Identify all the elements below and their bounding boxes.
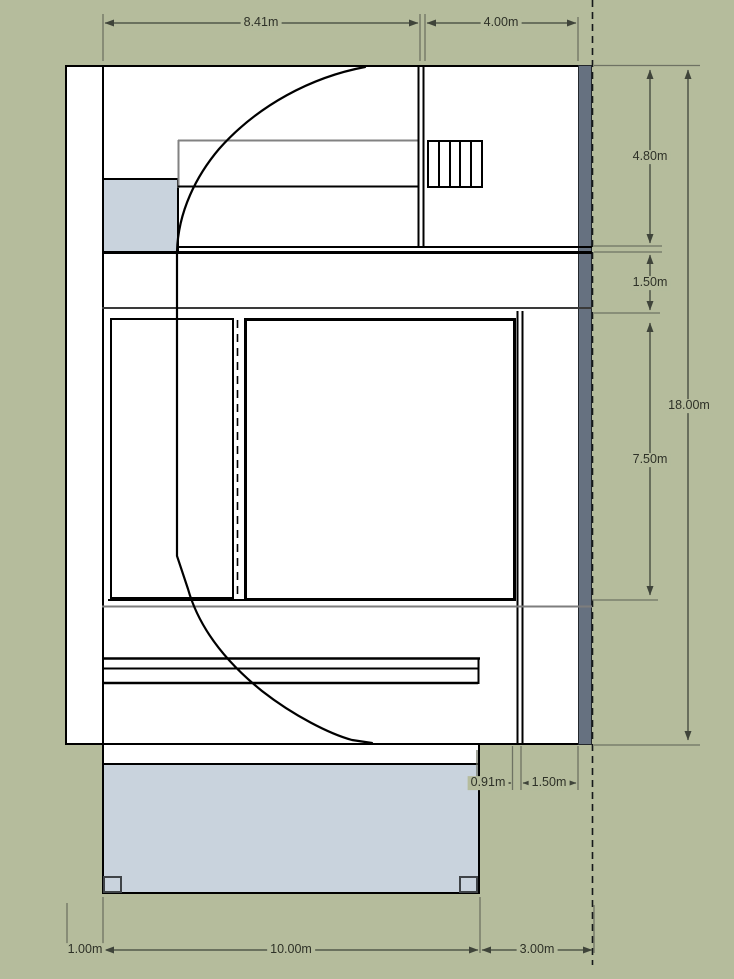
extension-lines xyxy=(67,14,700,953)
dim-label-upper-depth[interactable]: 4.80m xyxy=(630,150,671,164)
dim-label-wall-offset[interactable]: 0.91m xyxy=(468,776,509,790)
dimension-lines[interactable] xyxy=(69,23,688,950)
dim-label-middle-depth[interactable]: 7.50m xyxy=(630,453,671,467)
dim-label-corridor-depth[interactable]: 1.50m xyxy=(630,276,671,290)
dim-label-side-corridor[interactable]: 1.50m xyxy=(529,776,570,790)
dim-label-porch-width[interactable]: 10.00m xyxy=(267,943,315,957)
door-swing-arc[interactable] xyxy=(177,67,372,743)
interior-walls[interactable] xyxy=(102,65,592,744)
dim-label-total-depth[interactable]: 18.00m xyxy=(665,399,713,413)
floorplan-canvas: 8.41m 4.00m 4.80m 1.50m 7.50m 18.00m 0.9… xyxy=(0,0,734,979)
dim-label-upper-width-left[interactable]: 8.41m xyxy=(241,16,282,30)
dim-label-left-offset[interactable]: 1.00m xyxy=(65,943,106,957)
linework-overlay xyxy=(0,0,734,979)
dim-label-right-offset[interactable]: 3.00m xyxy=(517,943,558,957)
dim-label-upper-width-right[interactable]: 4.00m xyxy=(481,16,522,30)
